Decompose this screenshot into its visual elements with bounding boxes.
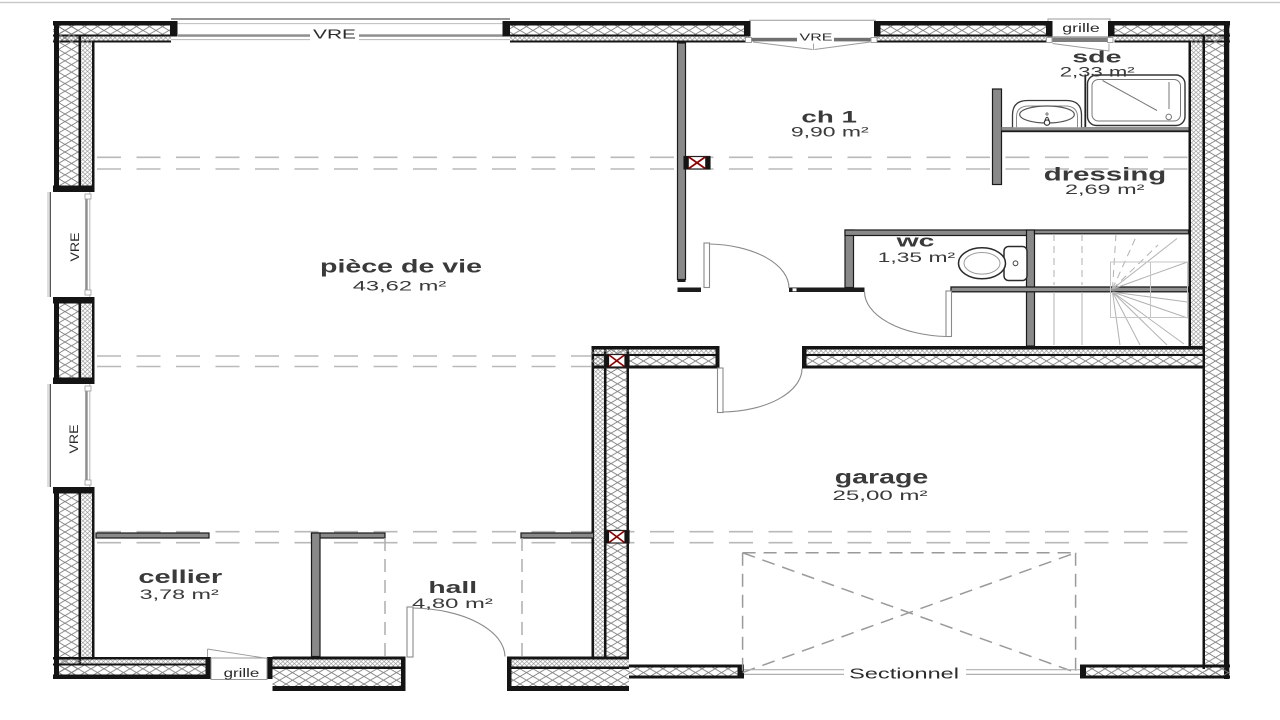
svg-text:hall: hall [428, 579, 477, 597]
svg-text:4,80 m²: 4,80 m² [412, 596, 494, 611]
svg-text:Sectionnel: Sectionnel [849, 667, 959, 683]
svg-text:VRE: VRE [800, 33, 833, 44]
svg-text:garage: garage [835, 468, 929, 489]
svg-text:cellier: cellier [138, 566, 222, 587]
svg-text:pièce de vie: pièce de vie [320, 256, 482, 277]
svg-text:VRE: VRE [313, 27, 356, 41]
svg-text:1,35 m²: 1,35 m² [878, 250, 956, 265]
svg-text:3,78 m²: 3,78 m² [140, 586, 220, 602]
svg-text:2,69 m²: 2,69 m² [1065, 182, 1145, 197]
svg-text:VRE: VRE [70, 232, 82, 261]
svg-text:9,90 m²: 9,90 m² [791, 125, 870, 140]
svg-text:grille: grille [1062, 23, 1099, 35]
svg-text:grille: grille [224, 668, 260, 680]
svg-text:VRE: VRE [69, 424, 81, 453]
svg-text:wc: wc [895, 233, 935, 251]
svg-text:25,00 m²: 25,00 m² [833, 487, 929, 503]
svg-text:43,62 m²: 43,62 m² [353, 278, 447, 294]
svg-text:2,33 m²: 2,33 m² [1060, 65, 1136, 80]
